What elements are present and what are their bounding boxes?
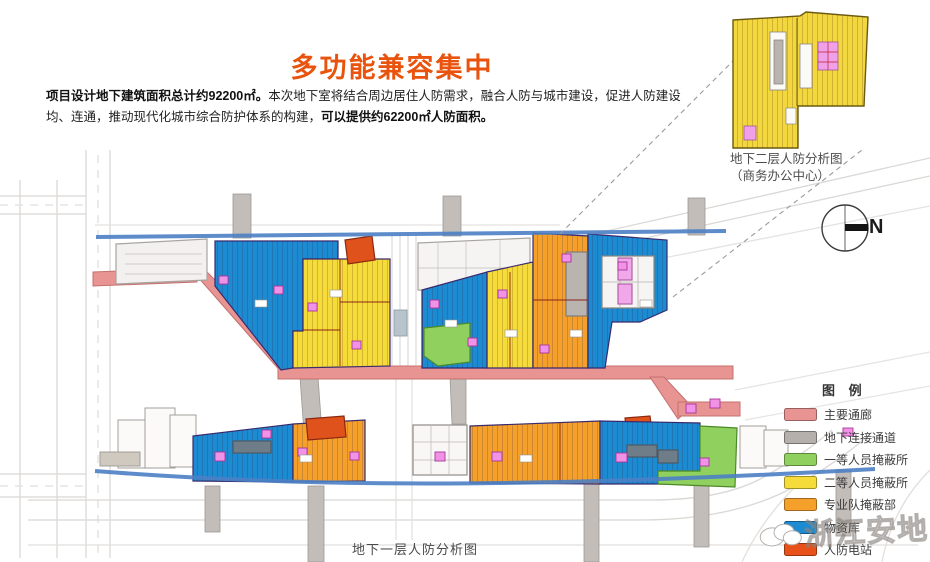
compass-icon [822,205,868,251]
legend-label: 一等人员掩蔽所 [824,451,908,468]
legend-swatch [784,543,817,556]
intro-paragraph: 项目设计地下建筑面积总计约92200㎡。本次地下室将结合周边居住人防需求，融合人… [46,86,706,128]
inset-caption-line1: 地下二层人防分析图 [730,151,910,168]
map-caption: 地下一层人防分析图 [280,539,550,558]
legend-label: 专业队掩蔽部 [824,496,896,513]
legend-swatch [784,498,817,511]
cluster-bottom-row [193,416,737,487]
legend-swatch [784,453,817,466]
legend-label: 二等人员掩蔽所 [824,474,908,491]
legend-rows: 主要通廊地下连接通道一等人员掩蔽所二等人员掩蔽所专业队掩蔽部物资库人防电站人防出… [784,406,930,562]
page-title: 多功能兼容集中 [0,46,784,85]
legend-item: 专业队掩蔽部 [784,496,930,513]
legend-swatch [784,408,817,421]
slide: 多功能兼容集中 项目设计地下建筑面积总计约92200㎡。本次地下室将结合周边居住… [0,0,930,562]
intro-line1-bold: 项目设计地下建筑面积总计约92200㎡。 [46,89,268,103]
legend-item: 人防电站 [784,541,930,558]
legend-item: 主要通廊 [784,406,930,423]
legend: 图 例 主要通廊地下连接通道一等人员掩蔽所二等人员掩蔽所专业队掩蔽部物资库人防电… [784,380,930,562]
legend-title: 图 例 [822,380,930,399]
inset-caption: 地下二层人防分析图 （商务办公中心） [730,151,910,185]
legend-item: 二等人员掩蔽所 [784,474,930,491]
intro-line2-bold: 可以提供约62200㎡人防面积。 [321,110,493,124]
compass-north-label: N [869,216,883,239]
intro-line-1: 项目设计地下建筑面积总计约92200㎡。本次地下室将结合周边居住人防需求，融合人… [46,86,706,107]
inset-caption-line2: （商务办公中心） [730,168,910,185]
legend-swatch [784,431,817,444]
cluster-top-left [116,236,390,370]
legend-item: 一等人员掩蔽所 [784,451,930,468]
legend-item: 物资库 [784,519,930,536]
legend-label: 物资库 [824,519,860,536]
intro-line2-regular: 均、连通，推动现代化城市综合防护体系的构建， [46,110,321,124]
legend-label: 地下连接通道 [824,429,896,446]
legend-swatch [784,476,817,489]
legend-swatch [784,521,817,534]
intro-line-2: 均、连通，推动现代化城市综合防护体系的构建，可以提供约62200㎡人防面积。 [46,107,706,128]
legend-label: 主要通廊 [824,406,872,423]
legend-item: 地下连接通道 [784,429,930,446]
legend-label: 人防电站 [824,541,872,558]
intro-line1-regular: 本次地下室将结合周边居住人防需求，融合人防与城市建设，促进人防建设 [268,89,681,103]
